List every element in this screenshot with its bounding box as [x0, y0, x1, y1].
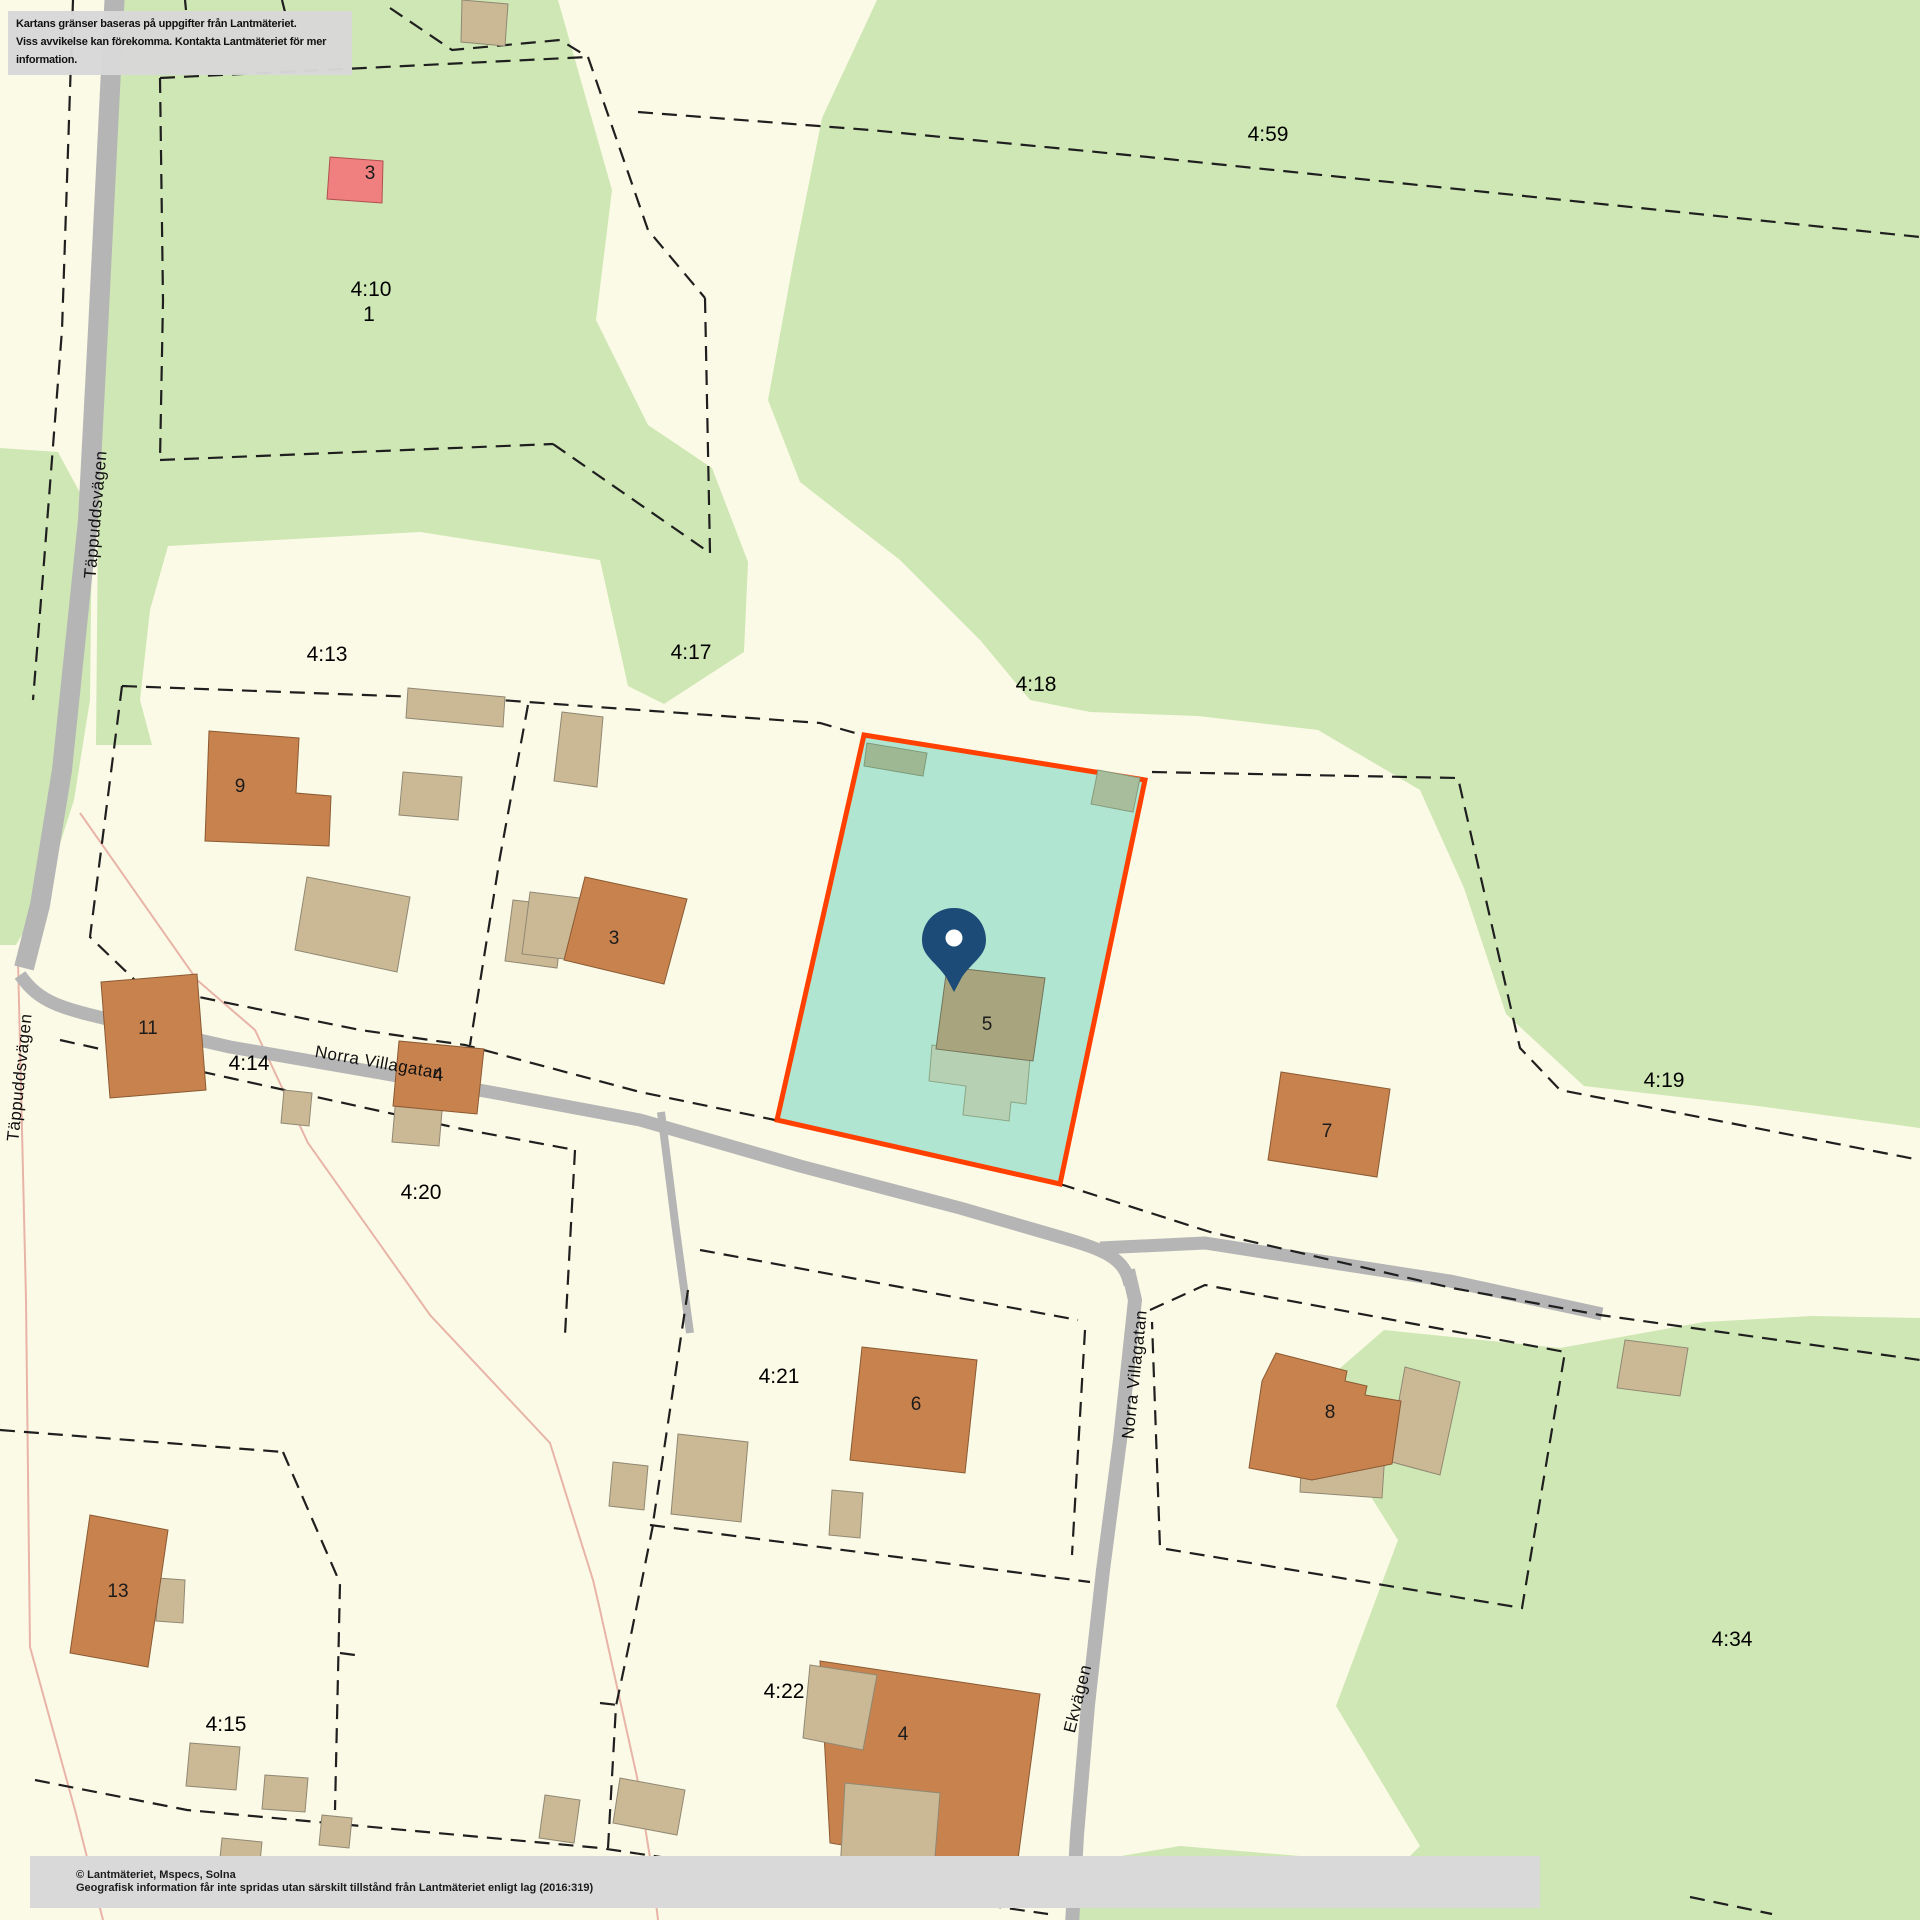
copyright-line-1: © Lantmäteriet, Mspecs, Solna [76, 1869, 1528, 1882]
parcel-label-4-15: 4:15 [206, 1713, 247, 1736]
copyright-note: © Lantmäteriet, Mspecs, Solna Geografisk… [30, 1856, 1540, 1908]
parcel-label-4-17: 4:17 [671, 641, 712, 664]
parcel-label-4-10-unit: 1 [363, 303, 375, 326]
building-label-8: 8 [1325, 1402, 1336, 1423]
building-label-13: 13 [107, 1581, 128, 1602]
outbuilding [461, 0, 508, 46]
parcel-label-4-19: 4:19 [1644, 1069, 1685, 1092]
disclaimer-line-2: Viss avvikelse kan förekomma. Kontakta L… [16, 34, 344, 70]
building-label-5: 5 [982, 1014, 993, 1035]
parcel-label-4-14: 4:14 [229, 1052, 270, 1075]
map-viewport[interactable]: 4:59 4:10 1 4:13 4:17 4:18 4:19 4:14 4:2… [0, 0, 1920, 1920]
outbuilding [671, 1434, 748, 1522]
building-label-3-pink: 3 [365, 163, 376, 184]
outbuilding [319, 1815, 352, 1848]
parcel-label-4-18: 4:18 [1016, 673, 1057, 696]
boundary-line [185, 0, 186, 10]
parcel-label-4-21: 4:21 [759, 1365, 800, 1388]
copyright-line-2: Geografisk information får inte spridas … [76, 1882, 1528, 1895]
parcel-label-4-20: 4:20 [401, 1181, 442, 1204]
outbuilding [186, 1743, 240, 1790]
building-label-3: 3 [609, 928, 620, 949]
outbuilding [1617, 1340, 1688, 1396]
parcel-label-4-10: 4:10 [351, 278, 392, 301]
disclaimer-line-1: Kartans gränser baseras på uppgifter frå… [16, 16, 344, 34]
outbuilding [281, 1090, 312, 1126]
parcel-label-4-34: 4:34 [1712, 1628, 1753, 1651]
outbuilding [539, 1795, 580, 1843]
map-pin-hole [946, 930, 963, 947]
building-label-7: 7 [1322, 1121, 1333, 1142]
parcel-label-4-22: 4:22 [764, 1680, 805, 1703]
building-label-9: 9 [235, 776, 246, 797]
outbuilding [554, 712, 603, 787]
building-label-4-south: 4 [898, 1724, 909, 1745]
building-label-6: 6 [911, 1394, 922, 1415]
parcel-label-4-59: 4:59 [1248, 123, 1289, 146]
building-label-11: 11 [138, 1018, 158, 1039]
outbuilding [399, 772, 462, 820]
disclaimer-note: Kartans gränser baseras på uppgifter frå… [8, 11, 352, 75]
map-canvas: 4:59 4:10 1 4:13 4:17 4:18 4:19 4:14 4:2… [0, 0, 1920, 1920]
outbuilding [262, 1775, 308, 1812]
outbuilding [829, 1490, 863, 1538]
parcel-label-4-13: 4:13 [307, 643, 348, 666]
outbuilding [609, 1462, 648, 1510]
outbuilding [1091, 770, 1140, 812]
